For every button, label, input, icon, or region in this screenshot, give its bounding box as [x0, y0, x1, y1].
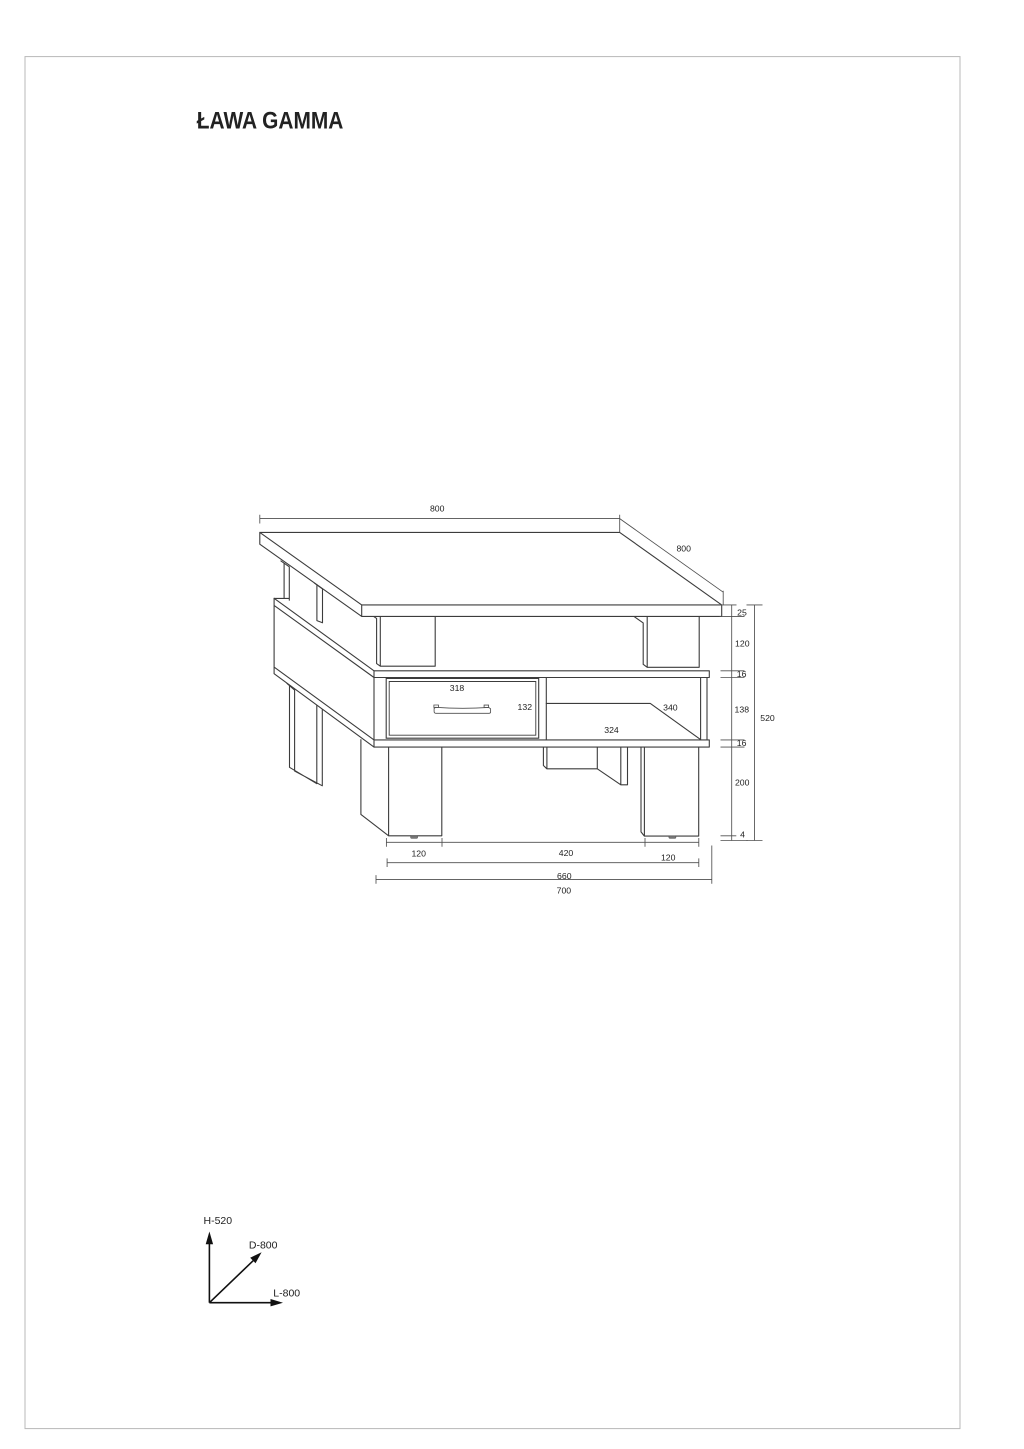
svg-text:800: 800	[430, 504, 445, 514]
svg-text:120: 120	[735, 638, 750, 648]
svg-text:420: 420	[559, 848, 574, 858]
svg-text:138: 138	[735, 705, 750, 715]
svg-text:ŁAWA GAMMA: ŁAWA GAMMA	[197, 108, 343, 135]
svg-text:D-800: D-800	[249, 1240, 278, 1252]
svg-text:16: 16	[737, 738, 747, 748]
svg-text:700: 700	[557, 886, 572, 896]
svg-text:120: 120	[661, 853, 676, 863]
svg-text:132: 132	[518, 702, 533, 712]
svg-text:L-800: L-800	[273, 1288, 300, 1300]
svg-text:324: 324	[604, 725, 619, 735]
svg-text:800: 800	[676, 544, 691, 554]
svg-text:520: 520	[760, 713, 775, 723]
svg-text:120: 120	[411, 848, 426, 858]
svg-text:200: 200	[735, 778, 750, 788]
svg-text:340: 340	[663, 703, 678, 713]
svg-text:25: 25	[737, 607, 747, 617]
svg-text:16: 16	[737, 669, 747, 679]
svg-text:H-520: H-520	[204, 1215, 233, 1227]
svg-text:4: 4	[740, 830, 745, 840]
svg-text:318: 318	[450, 683, 465, 693]
